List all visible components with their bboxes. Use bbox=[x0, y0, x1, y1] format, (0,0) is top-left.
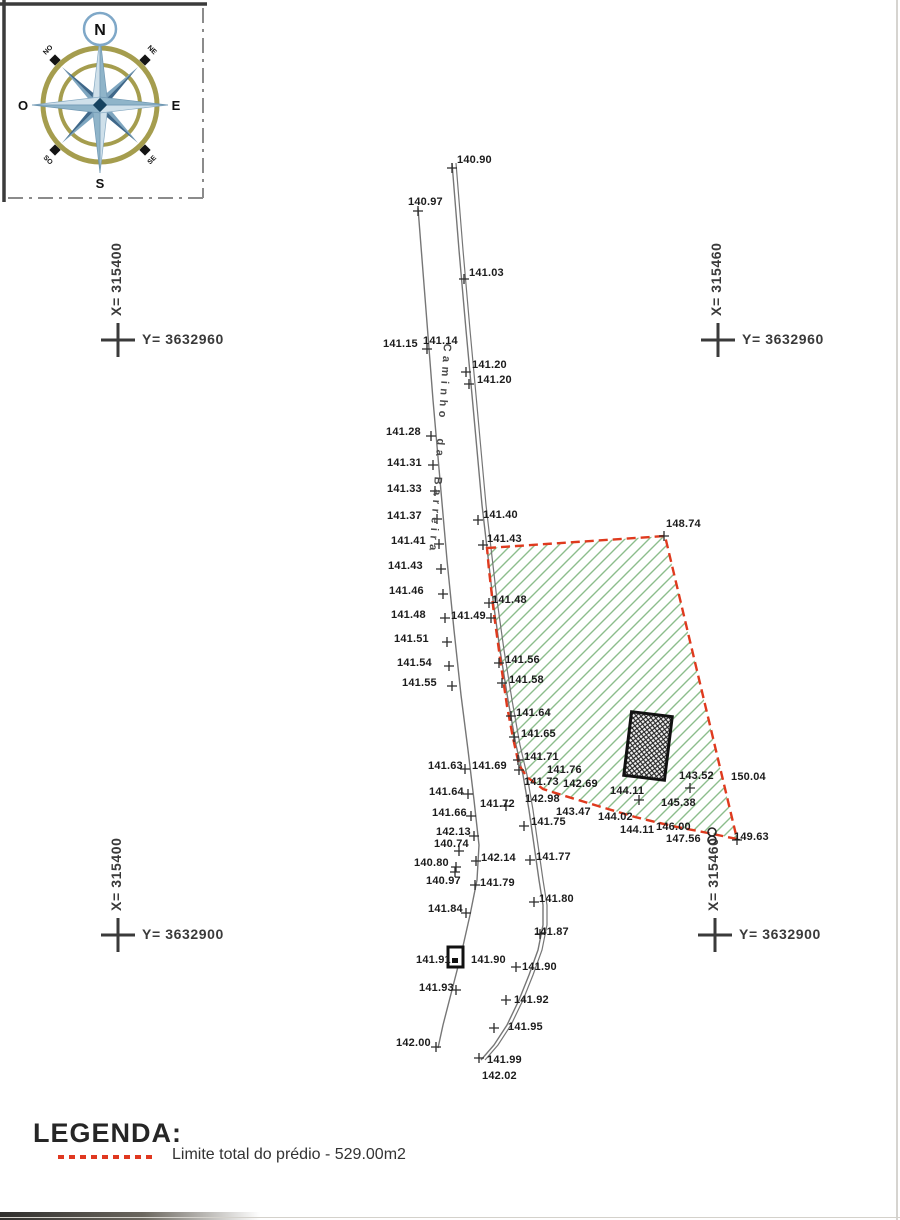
elevation-label: 141.73 bbox=[524, 777, 559, 788]
grid-y-coordinate-label: Y= 3632900 bbox=[739, 927, 821, 941]
elevation-label: 141.71 bbox=[524, 752, 559, 763]
grid-y-coordinate-label: Y= 3632900 bbox=[142, 927, 224, 941]
grid-y-coordinate-label: Y= 3632960 bbox=[742, 332, 824, 346]
scan-artifact-bottom-line bbox=[0, 1217, 900, 1218]
elevation-label: 140.97 bbox=[426, 876, 461, 887]
elevation-label: 141.64 bbox=[429, 787, 464, 798]
elevation-label: 141.54 bbox=[397, 658, 432, 669]
elevation-label: 142.02 bbox=[482, 1071, 517, 1082]
grid-y-coordinate-label: Y= 3632960 bbox=[142, 332, 224, 346]
elevation-label: 141.28 bbox=[386, 427, 421, 438]
elevation-label: 149.63 bbox=[734, 832, 769, 843]
elevation-label: 144.02 bbox=[598, 812, 633, 823]
elevation-label: 141.91 bbox=[416, 955, 451, 966]
elevation-label: 141.43 bbox=[487, 534, 522, 545]
elevation-label: 141.48 bbox=[391, 610, 426, 621]
elevation-label: 141.64 bbox=[516, 708, 551, 719]
elevation-label: 150.04 bbox=[731, 772, 766, 783]
elevation-label: 141.03 bbox=[469, 268, 504, 279]
elevation-label: 144.11 bbox=[620, 825, 654, 836]
elevation-label: 145.38 bbox=[661, 798, 696, 809]
grid-x-coordinate-label: X= 315460 bbox=[706, 837, 720, 911]
elevation-label: 141.92 bbox=[514, 995, 549, 1006]
elevation-label: 141.84 bbox=[428, 904, 463, 915]
elevation-label: 147.56 bbox=[666, 834, 701, 845]
grid-x-coordinate-label: X= 315400 bbox=[109, 242, 123, 316]
elevation-label: 141.87 bbox=[534, 927, 569, 938]
elevation-label: 141.69 bbox=[472, 761, 507, 772]
elevation-label: 141.43 bbox=[388, 561, 423, 572]
elevation-label: 144.11 bbox=[610, 786, 644, 797]
elevation-label: 141.72 bbox=[480, 799, 515, 810]
elevation-label: 141.15 bbox=[383, 339, 418, 350]
elevation-label: 141.55 bbox=[402, 678, 437, 689]
survey-plan-page: N E O S NE SE SO NO Caminho da Barreira … bbox=[0, 0, 900, 1220]
legend-boundary-swatch bbox=[58, 1155, 153, 1159]
elevation-label: 141.93 bbox=[419, 983, 454, 994]
elevation-label: 140.97 bbox=[408, 197, 443, 208]
elevation-label: 141.80 bbox=[539, 894, 574, 905]
legend-title: LEGENDA: bbox=[33, 1118, 182, 1149]
elevation-label: 141.99 bbox=[487, 1055, 522, 1066]
elevation-label: 141.58 bbox=[509, 675, 544, 686]
elevation-label: 141.77 bbox=[536, 852, 571, 863]
legend-item-label: Limite total do prédio - 529.00m2 bbox=[172, 1146, 406, 1164]
elevation-label: 141.48 bbox=[492, 595, 527, 606]
elevation-label: 141.63 bbox=[428, 761, 463, 772]
elevation-label: 141.56 bbox=[505, 655, 540, 666]
elevation-label: 141.95 bbox=[508, 1022, 543, 1033]
elevation-label: 141.37 bbox=[387, 511, 422, 522]
elevation-label: 141.90 bbox=[522, 962, 557, 973]
elevation-label: 140.80 bbox=[414, 858, 449, 869]
elevation-label: 141.33 bbox=[387, 484, 422, 495]
elevation-label: 141.66 bbox=[432, 808, 467, 819]
elevation-label: 142.98 bbox=[525, 794, 560, 805]
elevation-label: 142.69 bbox=[563, 779, 598, 790]
elevation-label: 141.40 bbox=[483, 510, 518, 521]
elevation-label: 142.00 bbox=[396, 1038, 431, 1049]
elevation-label: 143.52 bbox=[679, 771, 714, 782]
elevation-label: 141.20 bbox=[472, 360, 507, 371]
elevation-label: 141.79 bbox=[480, 878, 515, 889]
elevation-label: 141.65 bbox=[521, 729, 556, 740]
grid-x-coordinate-label: X= 315460 bbox=[709, 242, 723, 316]
elevation-label: 142.13 bbox=[436, 827, 471, 838]
elevation-label: 148.74 bbox=[666, 519, 701, 530]
scan-artifact-bar bbox=[0, 1212, 260, 1220]
elevation-label: 140.90 bbox=[457, 155, 492, 166]
map-labels-layer: Caminho da Barreira 140.90140.97141.0314… bbox=[0, 0, 900, 1220]
grid-x-coordinate-label: X= 315400 bbox=[109, 837, 123, 911]
elevation-label: 141.90 bbox=[471, 955, 506, 966]
elevation-label: 141.75 bbox=[531, 817, 566, 828]
elevation-label: 141.76 bbox=[547, 765, 582, 776]
elevation-label: 141.14 bbox=[423, 336, 458, 347]
elevation-label: 141.46 bbox=[389, 586, 424, 597]
elevation-label: 141.31 bbox=[387, 458, 422, 469]
elevation-label: 141.20 bbox=[477, 375, 512, 386]
scan-artifact-edge bbox=[896, 0, 898, 1220]
elevation-label: 146.00 bbox=[656, 822, 691, 833]
elevation-label: 141.51 bbox=[394, 634, 429, 645]
elevation-label: 141.49 bbox=[451, 611, 486, 622]
road-name-label: Caminho da Barreira bbox=[426, 343, 453, 555]
elevation-label: 140.74 bbox=[434, 839, 469, 850]
elevation-label: 141.41 bbox=[391, 536, 426, 547]
elevation-label: 142.14 bbox=[481, 853, 516, 864]
